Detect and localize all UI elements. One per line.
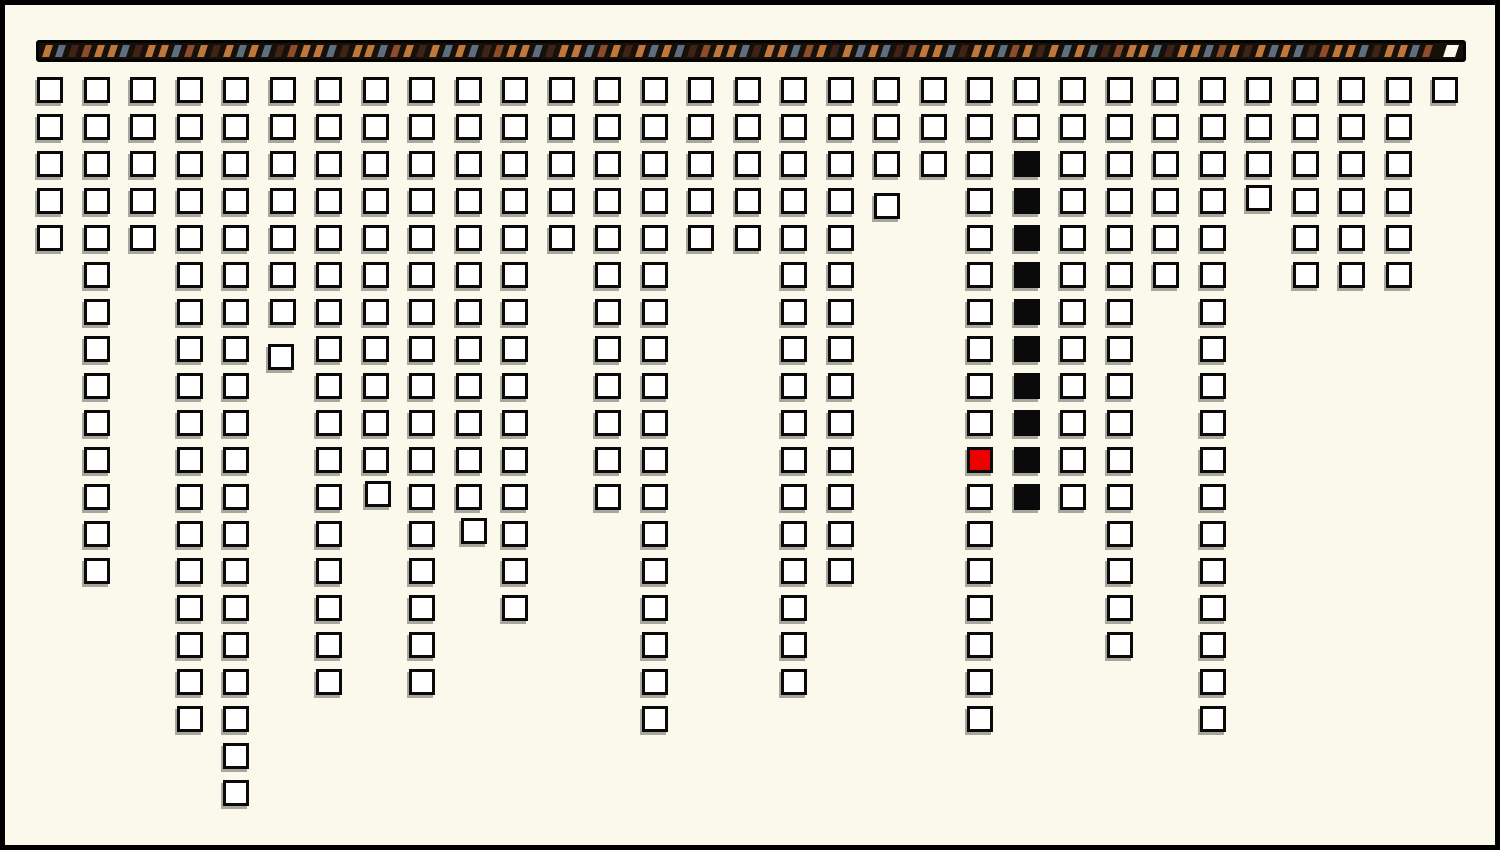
- grid-cell: [735, 225, 761, 251]
- grid-cell: [84, 447, 110, 473]
- ribbon-stripe: [1397, 45, 1408, 57]
- grid-cell: [967, 77, 993, 103]
- grid-cell: [967, 595, 993, 621]
- grid-cell: [456, 373, 482, 399]
- grid-cell: [595, 373, 621, 399]
- grid-cell: [1293, 114, 1319, 140]
- grid-cell: [270, 299, 296, 325]
- grid-cell: [84, 77, 110, 103]
- grid-cell: [967, 410, 993, 436]
- grid-cell: [1293, 188, 1319, 214]
- grid-cell: [967, 188, 993, 214]
- grid-cell: [177, 77, 203, 103]
- ribbon-stripe: [713, 45, 724, 57]
- ribbon-stripe: [1035, 45, 1046, 57]
- grid-cell: [967, 521, 993, 547]
- grid-cell: [642, 114, 668, 140]
- grid-cell: [409, 669, 435, 695]
- grid-cell: [502, 225, 528, 251]
- grid-cell: [1200, 299, 1226, 325]
- grid-cell: [1200, 77, 1226, 103]
- grid-cell: [549, 225, 575, 251]
- grid-cell: [363, 188, 389, 214]
- grid-cell: [1153, 225, 1179, 251]
- grid-cell: [502, 373, 528, 399]
- grid-cell: [316, 447, 342, 473]
- ribbon-stripe: [997, 45, 1008, 57]
- grid-cell: [177, 558, 203, 584]
- grid-cell: [1200, 188, 1226, 214]
- ribbon-stripe: [751, 45, 762, 57]
- grid-cell: [316, 410, 342, 436]
- grid-cell: [270, 225, 296, 251]
- ribbon-stripe: [352, 45, 363, 57]
- grid-cell: [409, 225, 435, 251]
- grid-cell: [735, 188, 761, 214]
- ribbon-stripe: [377, 45, 388, 57]
- grid-cell: [1246, 151, 1272, 177]
- ribbon-stripe: [390, 45, 401, 57]
- grid-cell: [642, 299, 668, 325]
- ribbon-stripe: [674, 45, 685, 57]
- grid-cell: [316, 521, 342, 547]
- grid-cell: [828, 373, 854, 399]
- grid-cell: [595, 114, 621, 140]
- grid-cell: [365, 481, 391, 507]
- grid-cell: [456, 336, 482, 362]
- grid-cell: [1200, 706, 1226, 732]
- ribbon-end-cap: [1443, 45, 1459, 57]
- grid-cell: [1060, 299, 1086, 325]
- ribbon-stripe: [1371, 45, 1382, 57]
- grid-cell: [642, 447, 668, 473]
- ribbon-stripe: [816, 45, 827, 57]
- ribbon-stripe: [932, 45, 943, 57]
- grid-cell: [828, 299, 854, 325]
- grid-cell: [549, 114, 575, 140]
- grid-cell: [409, 262, 435, 288]
- grid-cell: [1386, 151, 1412, 177]
- ribbon-stripe: [1332, 45, 1343, 57]
- poster-canvas: [0, 0, 1500, 850]
- grid-cell: [177, 299, 203, 325]
- grid-cell: [456, 151, 482, 177]
- grid-cell: [735, 151, 761, 177]
- ribbon-stripe: [893, 45, 904, 57]
- grid-cell: [268, 344, 294, 370]
- grid-cell: [1339, 77, 1365, 103]
- ribbon-stripe: [532, 45, 543, 57]
- grid-cell: [456, 262, 482, 288]
- grid-cell: [1293, 225, 1319, 251]
- grid-cell: [642, 706, 668, 732]
- grid-cell: [502, 151, 528, 177]
- grid-cell: [549, 188, 575, 214]
- grid-cell: [1060, 77, 1086, 103]
- grid-cell: [223, 114, 249, 140]
- grid-cell: [1200, 225, 1226, 251]
- grid-cell: [1246, 114, 1272, 140]
- grid-cell: [177, 373, 203, 399]
- ribbon-stripe: [1061, 45, 1072, 57]
- grid-cell: [270, 151, 296, 177]
- grid-cell: [781, 77, 807, 103]
- ribbon-stripe: [958, 45, 969, 57]
- grid-cell: [502, 521, 528, 547]
- grid-cell: [1386, 225, 1412, 251]
- grid-cell: [1060, 447, 1086, 473]
- grid-cell: [1060, 336, 1086, 362]
- grid-cell: [223, 558, 249, 584]
- grid-cell: [177, 447, 203, 473]
- grid-cell: [1293, 77, 1319, 103]
- grid-cell: [642, 595, 668, 621]
- grid-cell: [967, 484, 993, 510]
- ribbon-stripe: [1293, 45, 1304, 57]
- ribbon-stripe: [687, 45, 698, 57]
- ribbon-stripe: [506, 45, 517, 57]
- ribbon-stripe: [1048, 45, 1059, 57]
- ribbon-stripe: [661, 45, 672, 57]
- grid-cell: [177, 595, 203, 621]
- grid-cell: [130, 114, 156, 140]
- grid-cell: [1060, 151, 1086, 177]
- grid-cell: [409, 77, 435, 103]
- black-cell: [1014, 225, 1040, 251]
- grid-cell: [270, 77, 296, 103]
- grid-cell: [316, 373, 342, 399]
- grid-cell: [1107, 447, 1133, 473]
- grid-cell: [1200, 558, 1226, 584]
- grid-cell: [37, 225, 63, 251]
- grid-cell: [1014, 77, 1040, 103]
- grid-cell: [828, 410, 854, 436]
- grid-cell: [37, 188, 63, 214]
- grid-cell: [223, 632, 249, 658]
- grid-cell: [1386, 262, 1412, 288]
- grid-cell: [781, 558, 807, 584]
- grid-cell: [735, 114, 761, 140]
- grid-cell: [177, 706, 203, 732]
- grid-cell: [1060, 188, 1086, 214]
- grid-cell: [781, 447, 807, 473]
- grid-cell: [456, 484, 482, 510]
- grid-cell: [549, 77, 575, 103]
- grid-cell: [642, 669, 668, 695]
- grid-cell: [828, 151, 854, 177]
- ribbon-stripe: [1306, 45, 1317, 57]
- ribbon-stripe: [558, 45, 569, 57]
- grid-cell: [642, 225, 668, 251]
- ribbon-stripe: [880, 45, 891, 57]
- grid-cell: [363, 262, 389, 288]
- grid-cell: [781, 632, 807, 658]
- ribbon-stripe: [1113, 45, 1124, 57]
- ribbon-stripe: [1384, 45, 1395, 57]
- grid-cell: [223, 669, 249, 695]
- grid-cell: [1107, 373, 1133, 399]
- grid-cell: [502, 558, 528, 584]
- grid-cell: [967, 262, 993, 288]
- grid-cell: [177, 151, 203, 177]
- black-cell: [1014, 188, 1040, 214]
- grid-cell: [1293, 262, 1319, 288]
- grid-cell: [921, 77, 947, 103]
- grid-cell: [828, 114, 854, 140]
- ribbon-stripe: [274, 45, 285, 57]
- grid-cell: [1293, 151, 1319, 177]
- ribbon-stripe: [868, 45, 879, 57]
- grid-cell: [1200, 114, 1226, 140]
- ribbon-stripe: [739, 45, 750, 57]
- ribbon-stripe: [635, 45, 646, 57]
- grid-cell: [595, 299, 621, 325]
- grid-cell: [1153, 188, 1179, 214]
- grid-cell: [1060, 410, 1086, 436]
- grid-cell: [456, 114, 482, 140]
- grid-cell: [363, 114, 389, 140]
- grid-cell: [642, 373, 668, 399]
- ribbon-stripe: [790, 45, 801, 57]
- grid-cell: [967, 706, 993, 732]
- grid-cell: [409, 373, 435, 399]
- ribbon-stripe: [1216, 45, 1227, 57]
- grid-cell: [688, 114, 714, 140]
- grid-cell: [84, 151, 110, 177]
- grid-cell: [223, 336, 249, 362]
- grid-cell: [1107, 225, 1133, 251]
- grid-cell: [874, 77, 900, 103]
- grid-cell: [409, 410, 435, 436]
- grid-cell: [177, 225, 203, 251]
- grid-cell: [502, 484, 528, 510]
- grid-cell: [1200, 151, 1226, 177]
- grid-cell: [1107, 484, 1133, 510]
- grid-cell: [967, 299, 993, 325]
- grid-cell: [1386, 114, 1412, 140]
- ribbon-stripe: [493, 45, 504, 57]
- grid-cell: [84, 521, 110, 547]
- grid-cell: [688, 151, 714, 177]
- grid-cell: [502, 77, 528, 103]
- grid-cell: [967, 151, 993, 177]
- grid-cell: [84, 225, 110, 251]
- red-highlight-cell: [967, 447, 993, 473]
- grid-cell: [595, 484, 621, 510]
- grid-cell: [967, 373, 993, 399]
- grid-cell: [781, 336, 807, 362]
- grid-cell: [130, 77, 156, 103]
- grid-cell: [177, 114, 203, 140]
- grid-cell: [688, 225, 714, 251]
- ribbon-stripe: [906, 45, 917, 57]
- ribbon-stripe: [700, 45, 711, 57]
- grid-cell: [1060, 373, 1086, 399]
- ribbon-stripe: [171, 45, 182, 57]
- grid-cell: [967, 336, 993, 362]
- ribbon-stripe: [313, 45, 324, 57]
- ribbon-stripe: [1022, 45, 1033, 57]
- grid-cell: [223, 188, 249, 214]
- grid-cell: [223, 225, 249, 251]
- grid-cell: [1060, 114, 1086, 140]
- ribbon-stripe: [1087, 45, 1098, 57]
- grid-cell: [363, 373, 389, 399]
- ribbon-stripe: [261, 45, 272, 57]
- grid-cell: [316, 595, 342, 621]
- grid-cell: [84, 410, 110, 436]
- ribbon-stripe: [42, 45, 53, 57]
- grid-cell: [502, 299, 528, 325]
- grid-cell: [549, 151, 575, 177]
- ribbon-stripe: [777, 45, 788, 57]
- ribbon-stripe: [855, 45, 866, 57]
- grid-cell: [595, 188, 621, 214]
- grid-cell: [456, 225, 482, 251]
- grid-cell: [223, 595, 249, 621]
- grid-cell: [967, 225, 993, 251]
- grid-cell: [177, 188, 203, 214]
- grid-cell: [130, 151, 156, 177]
- grid-cell: [1153, 77, 1179, 103]
- grid-cell: [177, 632, 203, 658]
- grid-cell: [1200, 447, 1226, 473]
- grid-cell: [781, 225, 807, 251]
- grid-cell: [316, 299, 342, 325]
- ribbon-stripe: [842, 45, 853, 57]
- grid-cell: [316, 151, 342, 177]
- ribbon-stripe: [1100, 45, 1111, 57]
- grid-cell: [409, 447, 435, 473]
- grid-cell: [316, 484, 342, 510]
- ribbon-stripe: [223, 45, 234, 57]
- grid-cell: [781, 188, 807, 214]
- grid-cell: [642, 632, 668, 658]
- grid-cell: [1339, 262, 1365, 288]
- grid-cell: [409, 188, 435, 214]
- grid-cell: [223, 262, 249, 288]
- grid-cell: [1107, 410, 1133, 436]
- grid-cell: [828, 188, 854, 214]
- grid-cell: [502, 188, 528, 214]
- grid-cell: [363, 151, 389, 177]
- grid-cell: [1060, 225, 1086, 251]
- grid-cell: [37, 114, 63, 140]
- grid-cell: [595, 225, 621, 251]
- ribbon-stripe: [184, 45, 195, 57]
- ribbon-stripe: [416, 45, 427, 57]
- grid-cell: [1339, 188, 1365, 214]
- black-cell: [1014, 336, 1040, 362]
- ribbon-stripe: [984, 45, 995, 57]
- grid-cell: [316, 188, 342, 214]
- grid-cell: [967, 114, 993, 140]
- grid-cell: [595, 336, 621, 362]
- grid-cell: [781, 114, 807, 140]
- grid-cell: [828, 336, 854, 362]
- grid-cell: [84, 484, 110, 510]
- grid-cell: [921, 114, 947, 140]
- grid-cell: [316, 114, 342, 140]
- ribbon-stripe: [81, 45, 92, 57]
- ribbon-stripe: [1009, 45, 1020, 57]
- ribbon-stripe: [1074, 45, 1085, 57]
- grid-cell: [130, 225, 156, 251]
- grid-cell: [828, 558, 854, 584]
- grid-cell: [781, 151, 807, 177]
- ribbon-stripe: [1345, 45, 1356, 57]
- grid-cell: [1107, 521, 1133, 547]
- ribbon-stripe: [1177, 45, 1188, 57]
- grid-cell: [84, 262, 110, 288]
- grid-cell: [921, 151, 947, 177]
- ribbon-stripe: [519, 45, 530, 57]
- grid-cell: [409, 114, 435, 140]
- ribbon-stripe: [571, 45, 582, 57]
- grid-cell: [874, 151, 900, 177]
- ribbon-stripe: [55, 45, 66, 57]
- grid-cell: [84, 188, 110, 214]
- grid-cell: [1200, 336, 1226, 362]
- striped-ribbon: [36, 40, 1466, 62]
- ribbon-stripe: [584, 45, 595, 57]
- grid-cell: [270, 188, 296, 214]
- grid-cell: [130, 188, 156, 214]
- ribbon-stripe: [1280, 45, 1291, 57]
- ribbon-stripe: [726, 45, 737, 57]
- grid-cell: [642, 336, 668, 362]
- ribbon-stripe: [287, 45, 298, 57]
- grid-cell: [642, 77, 668, 103]
- grid-cell: [1246, 77, 1272, 103]
- ribbon-stripe: [145, 45, 156, 57]
- grid-cell: [828, 262, 854, 288]
- grid-cell: [642, 521, 668, 547]
- black-cell: [1014, 262, 1040, 288]
- grid-cell: [828, 484, 854, 510]
- grid-cell: [409, 632, 435, 658]
- grid-cell: [223, 484, 249, 510]
- ribbon-stripe: [1190, 45, 1201, 57]
- grid-cell: [781, 262, 807, 288]
- grid-cell: [1200, 669, 1226, 695]
- grid-cell: [502, 114, 528, 140]
- grid-cell: [177, 484, 203, 510]
- ribbon-stripe: [236, 45, 247, 57]
- ribbon-stripe: [248, 45, 259, 57]
- ribbon-stripe: [326, 45, 337, 57]
- grid-cell: [1200, 410, 1226, 436]
- grid-cell: [177, 262, 203, 288]
- ribbon-stripe: [1268, 45, 1279, 57]
- grid-cell: [316, 262, 342, 288]
- grid-cell: [781, 669, 807, 695]
- grid-cell: [409, 151, 435, 177]
- grid-cell: [363, 410, 389, 436]
- grid-cell: [84, 299, 110, 325]
- grid-cell: [1060, 262, 1086, 288]
- grid-cell: [1200, 632, 1226, 658]
- grid-cell: [502, 595, 528, 621]
- grid-cell: [1200, 262, 1226, 288]
- grid-cell: [1432, 77, 1458, 103]
- grid-cell: [735, 77, 761, 103]
- ribbon-stripe: [107, 45, 118, 57]
- black-cell: [1014, 484, 1040, 510]
- grid-cell: [461, 518, 487, 544]
- grid-cell: [967, 669, 993, 695]
- grid-cell: [177, 410, 203, 436]
